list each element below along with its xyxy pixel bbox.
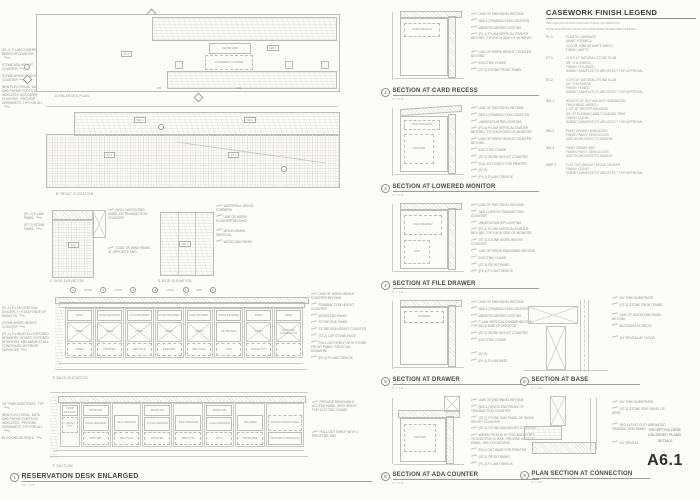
section-title-text: SECTION AT BASE xyxy=(532,377,641,385)
section-number: 2 xyxy=(381,88,390,97)
blocking-box xyxy=(528,306,578,324)
callout: 3/4" PWD SUBSTRATE, TYP xyxy=(2,402,46,410)
section-4-figure: FILE DRAWER CPU xyxy=(392,200,468,277)
callout: TRANSACTION HEIGHT COUNTER xyxy=(311,303,367,311)
legend-note: SEE SPECIFICATIONS FOR ADDITIONAL INFORM… xyxy=(546,21,696,25)
section-cells: CARD RECESSTRASH TYP MONITORCASH DRAWERP… xyxy=(60,403,304,447)
cabinet-label: OPEN xyxy=(246,322,271,342)
section-marker: 4 xyxy=(183,287,189,293)
view-d-callouts: WATERFALL WOOD CORNERS LINE OF WORK COUN… xyxy=(216,204,260,246)
stud-box xyxy=(550,396,566,426)
cabinet-cell: FILE DRAWERRECYCLE xyxy=(173,403,203,447)
callout: (PL-1) P-LAM TOEKICK xyxy=(471,175,539,179)
floor-line xyxy=(524,370,608,371)
callout: 1/4" REVEAL AT FLOOR xyxy=(612,336,668,340)
cabinet-label: CPU xyxy=(216,343,241,356)
callout: LINE OF END PANEL BEYOND xyxy=(471,12,539,16)
cabinet-label: OPEN xyxy=(246,310,271,321)
front-panel xyxy=(448,16,456,78)
panel-joint-line xyxy=(195,213,196,275)
cabinet-label: RECYCLE xyxy=(175,432,201,445)
section-title-text: SECTION AT LOWERED MONITOR xyxy=(393,184,540,192)
cabinet-label: KEYBOARD xyxy=(237,432,263,445)
detail-marker xyxy=(24,64,30,70)
callout: (ST-2) STONE PANEL xyxy=(24,223,50,231)
callout: (WD-1) TRANSACTION COUNTER xyxy=(471,113,539,117)
callout: EDGE OF WING PANEL AT OPPOSITE END xyxy=(108,246,154,254)
callout: WOOD END PANEL xyxy=(216,240,260,244)
cabinet-cell: MONITORCASH DRAWERPRINTER xyxy=(81,403,111,447)
view-a-plan: KEYBOARD LOWERED COUNTER ST-1 WD-1 EQ EQ xyxy=(36,14,340,92)
floor-line xyxy=(50,456,308,457)
callout: FULL EXT SHELF FOR PRINTER xyxy=(471,162,539,166)
cabinet-label: PRINTER xyxy=(144,432,170,445)
end-hatch xyxy=(55,302,63,368)
legend-item-tag: ST-2 xyxy=(546,78,562,95)
legend-item: WD-1 SOLID FLAT CUT WALNUT HARDWOOD THIC… xyxy=(546,99,696,125)
finish-tag: WD-1 xyxy=(244,117,256,123)
callout: (ST-2) FRONT PANEL xyxy=(471,263,539,267)
finish-tag: ST-2 xyxy=(228,152,239,158)
callout: (WD-1) WOOD END PANEL OF TRANSACTION COU… xyxy=(108,208,154,220)
cabinet-label: KEYBOARD xyxy=(216,322,241,342)
cabinet-cell: CASH DRAWERKEYBOARDCPU xyxy=(214,308,243,358)
cabinet-label: OPEN xyxy=(97,322,122,342)
callout: STONE WORK HEIGHT COUNTER xyxy=(2,321,50,329)
callout: LINE OF WORK HEIGHT COUNTER BEYOND xyxy=(471,50,539,58)
section-marker: 5 xyxy=(152,287,158,293)
elevation-marker-icon xyxy=(24,76,31,83)
callout: LINE OF WOOD END PANEL BEYOND xyxy=(471,249,539,253)
panel-line xyxy=(596,398,597,450)
lock-note: LOCK xyxy=(166,288,174,292)
dim-line xyxy=(46,106,338,107)
view-c-callouts-left: (PL-1) P-LAM PANEL (ST-2) STONE PANEL xyxy=(24,212,50,234)
panel-line xyxy=(588,300,589,372)
callout: (PL-1) P-LAM VERTICAL DIVIDER, TYP EACH … xyxy=(2,306,50,318)
finish-tag: WD-1 xyxy=(179,241,191,247)
dim-line xyxy=(50,392,308,393)
finish-tag: ST-2 xyxy=(104,152,115,158)
section-9-title: 9 PLAN SECTION AT CONNECTION 6" = 1'-0" xyxy=(520,471,650,484)
casework-finish-legend: CASEWORK FINISH LEGEND SEE SPECIFICATION… xyxy=(546,8,696,175)
callout: STONE END PANEL xyxy=(311,320,367,324)
callout: (PL-1) P-LAM VERTICAL DIVIDER BEYOND, TY… xyxy=(471,32,539,40)
detail-marker xyxy=(158,124,164,130)
view-e-markers: 4 LOCK 5 LOCK 3 5 LOCK 4 SIM 2 xyxy=(70,287,305,293)
callout: PULL-OUT SHELF WITH STONE FRONT PANEL, S… xyxy=(311,341,367,353)
cabinet-label: FILE DRAWER xyxy=(127,310,152,321)
section-3-title: 3 SECTION AT LOWERED MONITOR 3" = 1'-0" xyxy=(381,184,539,197)
cabinet-cell: CARD RECESSTRASH TYP xyxy=(60,403,80,447)
panel-line-dashed xyxy=(584,300,585,372)
section-6-title: 6 SECTION AT ADA COUNTER 3" = 1'-0" xyxy=(381,472,539,485)
section-scale: 3" = 1'-0" xyxy=(393,193,540,197)
cabinet-label: CASH DRAWER xyxy=(144,417,170,431)
section-8-title: 8 SECTION AT BASE 6" = 1'-0" xyxy=(520,377,640,390)
base-line xyxy=(59,363,303,364)
cabinet-label: FILE DRAWER xyxy=(175,415,201,431)
section-title-text: SECTION AT FILE DRAWER xyxy=(393,281,540,289)
callout: LINE OF WORK COUNTER BEYOND xyxy=(216,215,260,223)
section-6-figure: PRINTER xyxy=(392,394,468,468)
cabinet-label: TRASH TYP xyxy=(62,417,78,433)
section-scale: 3" = 1'-0" xyxy=(393,386,540,390)
panel-hatch xyxy=(46,134,340,188)
finish-tag: ST-2 xyxy=(68,242,79,248)
floor-line xyxy=(394,78,464,79)
sim-note: SIM xyxy=(197,288,202,292)
cabinet-label: OPEN xyxy=(127,322,152,342)
callout: (PL-1) P-LAM AT ALL EXPOSED DRAWERS, DOO… xyxy=(2,332,50,352)
cabinet-label: PRINTER COPIER FAX xyxy=(268,432,302,445)
view-f-label: F SECTION xyxy=(53,464,73,468)
interior-label: CASH DRAWER xyxy=(404,120,440,130)
section-title-text: PLAN SECTION AT CONNECTION xyxy=(532,471,651,479)
cabinet-label xyxy=(276,343,301,356)
callout: (PL-1) P-LAM TOEKICK xyxy=(311,356,367,360)
section-scale: 6" = 1'-0" xyxy=(532,386,641,390)
callout: (PL-1) P-LAM PANEL xyxy=(24,212,50,220)
cabinet-cell: CASH DRAWEROPENPRINTER xyxy=(155,308,184,358)
cabinet-label: MONITOR xyxy=(144,405,170,416)
section-title-text: SECTION AT CARD RECESS xyxy=(393,88,540,96)
legend-item-desc: CUT/CUT NATURAL STONE SLAB 3/4" THICKNES… xyxy=(566,56,696,73)
monitor-symbol xyxy=(175,61,183,69)
section-4-callouts: LINE OF END PANEL BEYOND (WD-1) WOOD TRA… xyxy=(471,203,539,276)
interior-label: FILE DRAWER xyxy=(404,215,442,235)
wood-transaction-panel xyxy=(532,442,596,454)
stone-counter-hatch xyxy=(152,17,337,41)
finish-tag: WD-1 xyxy=(134,117,146,123)
cabinet-cell: OPENPRINTER COPIER FAX xyxy=(274,308,303,358)
section-5-title: 5 SECTION AT DRAWER 3" = 1'-0" xyxy=(381,377,539,390)
dim-line xyxy=(392,12,393,80)
view-e-callouts-left: (PL-1) P-LAM VERTICAL DIVIDER, TYP EACH … xyxy=(2,306,50,355)
callout: (WD-1) TRANSACTION COUNTER xyxy=(471,19,539,23)
keyboard-box: KEYBOARD xyxy=(209,43,251,54)
section-3-callouts: LINE OF END PANEL BEYOND (WD-1) TRANSACT… xyxy=(471,106,539,182)
cabinet-label: FILE DRAWER xyxy=(114,415,140,431)
callout: ELECTRIC CHASE xyxy=(471,256,539,260)
cabinet-label: MONITOR xyxy=(206,405,232,416)
view-f-callouts-left: 3/4" PWD SUBSTRATE, TYP NEW ELECTRICAL, … xyxy=(2,402,46,443)
legend-item-tag: ST-1 xyxy=(546,56,562,73)
cabinet-label: PRINTER xyxy=(83,432,109,445)
cabinet-label: PRINTER xyxy=(97,343,122,356)
interior-label: CARD RECESS xyxy=(404,23,440,37)
section-number: 8 xyxy=(520,377,529,386)
cabinet-label: OPEN xyxy=(67,310,92,321)
section-8-figure xyxy=(524,300,608,374)
floor-line xyxy=(394,464,464,465)
callout: ELECTRIC CHASE xyxy=(471,61,539,65)
cabinet-label: CASH DRAWER xyxy=(206,417,232,431)
front-panel xyxy=(446,416,454,464)
callout: LINE OF WORK HEIGHT COUNTER BEYOND xyxy=(471,137,539,145)
front-panel xyxy=(448,114,456,174)
view-e-callouts-right: LINE OF WORK HEIGHT COUNTER BEYOND TRANS… xyxy=(311,292,367,362)
cabinet-label: RECYCLE xyxy=(114,432,140,445)
stone-counter-hatch xyxy=(167,71,337,89)
section-marker: 5 xyxy=(100,287,106,293)
cabinet-label: RECYCLE xyxy=(127,343,152,356)
callout: (ST-2) STONE SIDE PANEL OF DESK xyxy=(612,407,668,415)
front-panel xyxy=(448,305,456,367)
callout: BLOCKING AS REQ'D xyxy=(2,436,46,440)
legend-item-tag: WD-1 xyxy=(546,99,562,125)
legend-item-tag: WD-2 xyxy=(546,129,562,142)
cabinet-label: MONITOR xyxy=(83,405,109,416)
casework-cells: OPENOPENOPEN CASH DRAWEROPENPRINTER FILE… xyxy=(65,308,303,358)
cabinet-label: TRASH TYP xyxy=(246,343,271,356)
callout: (PL-1) P-LAM TOEKICK xyxy=(471,269,539,273)
cabinet-label: CASH DRAWER xyxy=(157,310,182,321)
section-2-title: 2 SECTION AT CARD RECESS 3" = 1'-0" xyxy=(381,88,539,101)
cabinet-label: CARD RECESS xyxy=(62,405,78,416)
section-3-figure: CASH DRAWER PRINTER xyxy=(392,104,468,180)
lock-note: LOCK xyxy=(84,288,92,292)
callout: WATERFALL WOOD CORNERS xyxy=(216,204,260,212)
section-number: 3 xyxy=(381,184,390,193)
section-marker: 2 xyxy=(210,287,216,293)
callout: PULL-OUT SHELF WITH 2 PRINTERS, SIM xyxy=(312,430,364,438)
callout: ELECTRIC CHASE xyxy=(471,148,539,152)
interior-label: DRAWER xyxy=(404,311,444,323)
dim-line xyxy=(392,204,393,272)
wall-hatch xyxy=(524,426,562,440)
callout: UNDERCOUNTER LIGHTING xyxy=(471,26,539,30)
cabinet-cell: FILE DRAWEROPENRECYCLE xyxy=(125,308,154,358)
view-e-label: E BACK ELEVATION xyxy=(53,376,88,380)
legend-note: NOTE: ELEVATION CALLOUTS SUPERSEDE SCHED… xyxy=(546,27,696,31)
callout: WOOD GRAIN, VERTICAL xyxy=(216,229,260,237)
section-2-figure: CARD RECESS xyxy=(392,8,468,84)
section-scale: 3" = 1'-0" xyxy=(393,97,540,101)
cabinet-label: PRINTER xyxy=(157,343,182,356)
section-8-callouts: 3/4" PWD SUBSTRATE (ST-2) STONE FRONT PA… xyxy=(612,296,668,342)
callout: (ST-2) STONE FRONT PANEL xyxy=(612,303,668,307)
view-b-elevation: WD-1 WD-1 ST-2 ST-2 xyxy=(46,106,338,190)
cabinet-label: OPEN xyxy=(67,343,92,356)
view-c-callouts-right: (WD-1) WOOD END PANEL OF TRANSACTION COU… xyxy=(108,208,154,257)
cabinet-label xyxy=(62,434,78,445)
finish-tag: WD-1 xyxy=(267,45,279,51)
monitor-symbol xyxy=(285,61,293,69)
legend-item: PL-1 PLASTIC LAMINATE MANF: FORMICA COLO… xyxy=(546,35,696,52)
cabinet-label xyxy=(114,405,140,414)
wood-counter-hatch xyxy=(74,112,340,136)
finish-tag: ST-1 xyxy=(121,51,132,57)
legend-item-desc: SOLID FLAT CUT WALNUT HARDWOOD THICKNESS… xyxy=(566,99,696,125)
cabinet-label: OPEN xyxy=(157,322,182,342)
cabinet-label: DATA ACCESS PANEL xyxy=(268,415,302,431)
section-number: 6 xyxy=(381,472,390,481)
base-post xyxy=(546,326,566,370)
cabinet-label: CASH DRAWER xyxy=(216,310,241,321)
legend-item-desc: PLASTIC LAMINATE MANF: FORMICA COLOR: 92… xyxy=(566,35,696,52)
end-panel xyxy=(92,210,106,238)
cabinet-cell: MONITORCASH DRAWERCPU xyxy=(204,403,234,447)
cabinet-cell: DRAWERKEYBOARD xyxy=(235,403,265,447)
callout: (ST-1) WORK HEIGHT COUNTER xyxy=(471,155,539,159)
legend-item-desc: PAINT GRADE HARDWOOD FINISH: PAINT, SEMI… xyxy=(566,129,696,142)
section-scale: 3" = 1'-0" xyxy=(393,481,540,485)
callout: (PL-1) P-LAM VERTICAL DIVIDER BEYOND, TY… xyxy=(471,227,539,235)
elevation-marker-icon xyxy=(195,94,202,101)
legend-item: ST-2 CUT/CUT NATURAL STONE SLAB 3/4" THI… xyxy=(546,78,696,95)
legend-item-tag: PL-1 xyxy=(546,35,562,52)
view-f-section: CARD RECESSTRASH TYP MONITORCASH DRAWERP… xyxy=(50,392,308,462)
cabinet-cell: OPENOPENTRASH TYP xyxy=(244,308,273,358)
interior-label: PRINTER xyxy=(404,134,434,164)
floor-line xyxy=(55,369,307,370)
dim-label: EQ xyxy=(157,86,161,90)
base-line xyxy=(54,450,304,451)
section-scale: 6" = 1'-0" xyxy=(532,480,651,484)
floor-line xyxy=(394,367,464,368)
section-2-callouts: LINE OF END PANEL BEYOND (WD-1) TRANSACT… xyxy=(471,12,539,75)
callout: (PL-1) P-LAM VERTICAL DIVIDER BEYOND, TY… xyxy=(471,126,539,134)
callout: LINE OF END PANEL BEYOND xyxy=(471,106,539,110)
cabinet-label: PRINTER COPIER FAX xyxy=(276,322,301,342)
callout: UNDERCOUNTER LIGHTING xyxy=(471,221,539,225)
view-scale: 3/4" = 1'-0" xyxy=(22,483,373,487)
floor-line xyxy=(394,271,464,272)
legend-item: WDP-1 FLAT CUT WALNUT WOOD VENEER FINISH… xyxy=(546,163,696,176)
cabinet-cell: CASH DRAWEROPENPRINTER xyxy=(95,308,124,358)
callout: PROVIDE REMOVABLE ACCESS PANEL WITH SPAC… xyxy=(312,400,364,412)
cabinet-label: DRAWER xyxy=(237,415,263,431)
cabinet-cell: DATA ACCESS PANELPRINTER COPIER FAX xyxy=(266,403,304,447)
section-9-figure xyxy=(524,396,608,466)
callout: UNDERCOUNTER LIGHTING xyxy=(471,120,539,124)
dim-line xyxy=(392,108,393,176)
callout: 3/4" PWD SUBSTRATE xyxy=(612,296,668,300)
sheet-number: A6.1 xyxy=(634,452,696,470)
callout: STONE ADA HEIGHT COUNTER xyxy=(311,327,367,331)
cabinet-label xyxy=(237,405,263,414)
cabinet-label xyxy=(175,405,201,414)
callout: LINE OF WORK HEIGHT COUNTER BEYOND xyxy=(311,292,367,300)
dim-line xyxy=(392,398,393,464)
cabinet-label: OPEN xyxy=(276,310,301,321)
cabinet-label: OPEN xyxy=(187,322,212,342)
cabinet-label: FILE DRAWER xyxy=(187,310,212,321)
legend-item-tag: WDP-1 xyxy=(546,163,562,176)
cabinet-label: CASH DRAWER xyxy=(97,310,122,321)
legend-item: WD-3 PAINT GRADE MDF FINISH: PAINT, SEMI… xyxy=(546,146,696,159)
front-panel xyxy=(448,208,456,270)
callout: (ST-2) xyxy=(471,168,539,172)
callout: LINE OF END PANEL BEYOND xyxy=(471,203,539,207)
callout: LINE OF WOOD END PANEL BEYOND xyxy=(612,313,668,321)
floor-line xyxy=(394,174,464,175)
interior-label: CPU xyxy=(404,240,430,264)
callout: 3/4" PWD SUBSTRATE xyxy=(612,400,668,404)
section-5-figure: DRAWER xyxy=(392,297,468,373)
title-block: RECEPTION DESK ENLARGED PLANS, DETAILS A… xyxy=(634,428,696,470)
callout: (WD-1) WOOD TRANSACTION COUNTER xyxy=(471,210,539,218)
view-f-callouts-right: PROVIDE REMOVABLE ACCESS PANEL WITH SPAC… xyxy=(312,400,364,441)
callout: (ST-2) LAP STONE EDGE xyxy=(311,334,367,338)
panel-line xyxy=(580,300,581,372)
section-number: 9 xyxy=(520,471,529,480)
section-title-text: SECTION AT DRAWER xyxy=(393,377,540,385)
dim-line xyxy=(392,301,393,369)
section-marker: 4 xyxy=(70,287,76,293)
panel-hatch xyxy=(52,219,94,278)
section-scale: 3" = 1'-0" xyxy=(393,290,540,294)
cabinet-label xyxy=(268,405,302,414)
detail-marker xyxy=(281,166,287,172)
view-b-label: B FRONT ELEVATION xyxy=(56,192,93,196)
legend-item-desc: CUT/CUT NATURAL STONE SLAB 3/4" THICKNES… xyxy=(566,78,696,95)
section-marker: 3 xyxy=(130,287,136,293)
cabinet-cell: FILE DRAWERRECYCLE xyxy=(112,403,142,447)
cabinet-label: CASH DRAWER xyxy=(83,417,109,431)
legend-item-tag: WD-3 xyxy=(546,146,562,159)
cabinet-label: CPU xyxy=(206,432,232,445)
legend-item-desc: PAINT GRADE MDF FINISH: PAINT, SEMI-GLOS… xyxy=(566,146,696,159)
view-title: RESERVATION DESK ENLARGED xyxy=(22,473,373,482)
view-number: 1 xyxy=(10,473,19,482)
callout: NEW ELECTRICAL, DATA AND PHONE PORTS AS … xyxy=(2,413,46,433)
section-number: 4 xyxy=(381,281,390,290)
section-title-text: SECTION AT ADA COUNTER xyxy=(393,472,540,480)
section-4-title: 5 4 SECTION AT FILE DRAWER 3" = 1'-0" xyxy=(381,281,539,294)
end-hatch xyxy=(50,396,58,458)
callout: WOOD END PANEL xyxy=(311,314,367,318)
view-a-label: A ENLARGED PLAN xyxy=(55,94,89,98)
cabinet-cell: OPENOPENOPEN xyxy=(65,308,94,358)
counter-band xyxy=(58,396,306,403)
monitor-symbol xyxy=(321,61,329,69)
legend-item: ST-1 CUT/CUT NATURAL STONE SLAB 3/4" THI… xyxy=(546,56,696,73)
lock-note: LOCK xyxy=(114,288,122,292)
main-view-title: 1 RESERVATION DESK ENLARGED 3/4" = 1'-0" xyxy=(10,473,372,487)
panel-line xyxy=(590,398,591,450)
lowered-counter-box: LOWERED COUNTER xyxy=(205,55,253,70)
legend-title: CASEWORK FINISH LEGEND xyxy=(546,8,696,19)
drawing-sheet: (PL-1) P-LAM LOWERED MONITOR COUNTER, TY… xyxy=(0,0,700,500)
cabinet-cell: MONITORCASH DRAWERPRINTER xyxy=(142,403,172,447)
legend-item: WD-2 PAINT GRADE HARDWOOD FINISH: PAINT,… xyxy=(546,129,696,142)
callout: (ST-1) STONE WORK HEIGHT COUNTER xyxy=(471,238,539,246)
cabinet-label: OPEN xyxy=(67,322,92,342)
sheet-title-line: DETAILS xyxy=(634,439,696,444)
callout: BLOCKING AS REQ'D xyxy=(612,324,668,328)
view-c-label: C SIDE ELEVATION xyxy=(50,279,84,283)
cabinet-cell: FILE DRAWEROPENRECYCLE xyxy=(185,308,214,358)
cabinet-label: RECYCLE xyxy=(187,343,212,356)
view-d-side-elevation: WD-1 xyxy=(160,212,214,276)
view-c-side-elevation: ST-2 xyxy=(52,210,104,276)
section-number: 5 xyxy=(381,377,390,386)
dim-label: EQ xyxy=(237,86,241,90)
interior-label: PRINTER xyxy=(404,424,436,452)
view-d-label: D SIDE ELEVATION xyxy=(158,279,192,283)
legend-item-desc: FLAT CUT WALNUT WOOD VENEER FINISH: CLEA… xyxy=(566,163,696,176)
callout: (ST-2) STONE FRONT PANEL xyxy=(471,68,539,72)
view-e-back-elevation: OPENOPENOPEN CASH DRAWEROPENPRINTER FILE… xyxy=(55,297,307,373)
